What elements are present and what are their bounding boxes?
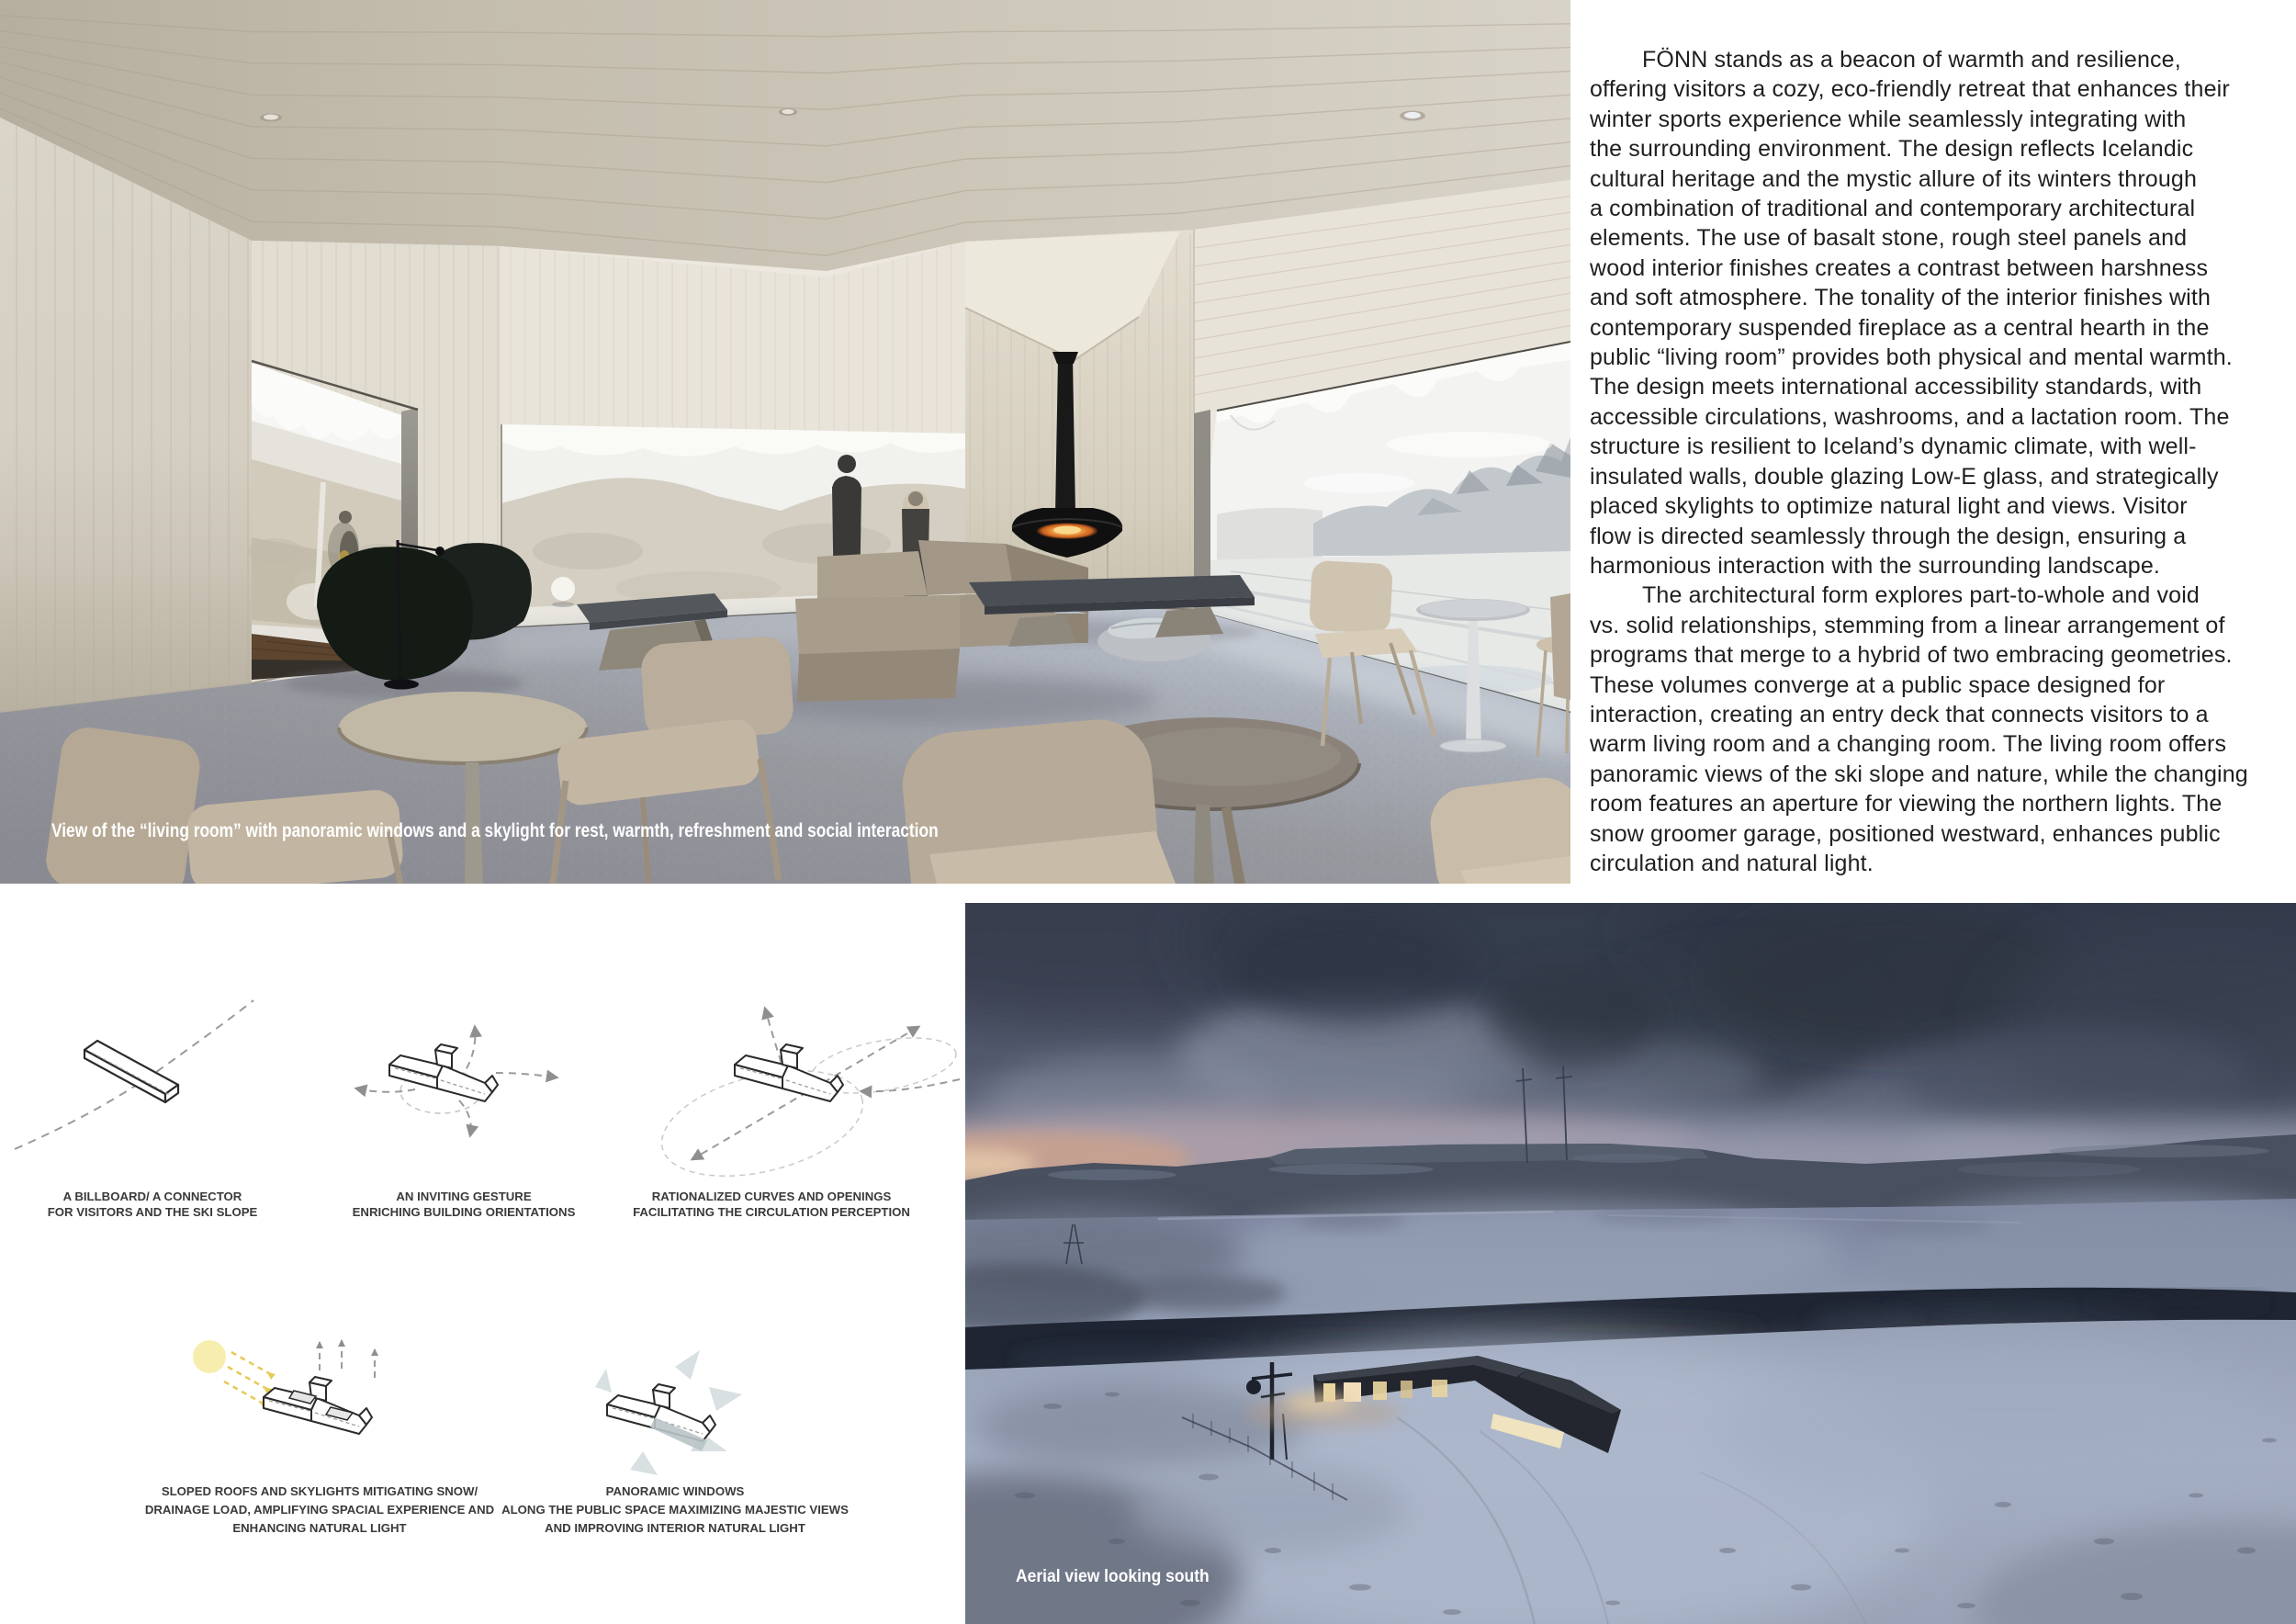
svg-text:FACILITATING THE CIRCULATION P: FACILITATING THE CIRCULATION PERCEPTION (633, 1205, 910, 1219)
svg-text:RATIONALIZED CURVES AND OPENIN: RATIONALIZED CURVES AND OPENINGS (652, 1190, 892, 1203)
svg-text:FOR VISITORS AND THE SKI SLOPE: FOR VISITORS AND THE SKI SLOPE (48, 1205, 258, 1219)
svg-text:DRAINAGE LOAD, AMPLIFYING SPAC: DRAINAGE LOAD, AMPLIFYING SPACIAL EXPERI… (145, 1503, 494, 1517)
svg-text:PANORAMIC WINDOWS: PANORAMIC WINDOWS (606, 1484, 745, 1498)
svg-text:A BILLBOARD/ A CONNECTOR: A BILLBOARD/ A CONNECTOR (63, 1190, 242, 1203)
svg-text:AND IMPROVING INTERIOR NATURAL: AND IMPROVING INTERIOR NATURAL LIGHT (545, 1521, 805, 1535)
svg-text:ENHANCING NATURAL LIGHT: ENHANCING NATURAL LIGHT (232, 1521, 406, 1535)
svg-text:AN INVITING GESTURE: AN INVITING GESTURE (396, 1190, 531, 1203)
svg-text:SLOPED ROOFS AND SKYLIGHTS MIT: SLOPED ROOFS AND SKYLIGHTS MITIGATING SN… (162, 1484, 478, 1498)
svg-text:View of the “living room” with: View of the “living room” with panoramic… (51, 819, 939, 841)
svg-text:ENRICHING BUILDING ORIENTATION: ENRICHING BUILDING ORIENTATIONS (353, 1205, 576, 1219)
svg-text:ALONG THE PUBLIC SPACE MAXIMIZ: ALONG THE PUBLIC SPACE MAXIMIZING MAJEST… (501, 1503, 849, 1517)
svg-text:Aerial view looking south: Aerial view looking south (1016, 1565, 1210, 1585)
